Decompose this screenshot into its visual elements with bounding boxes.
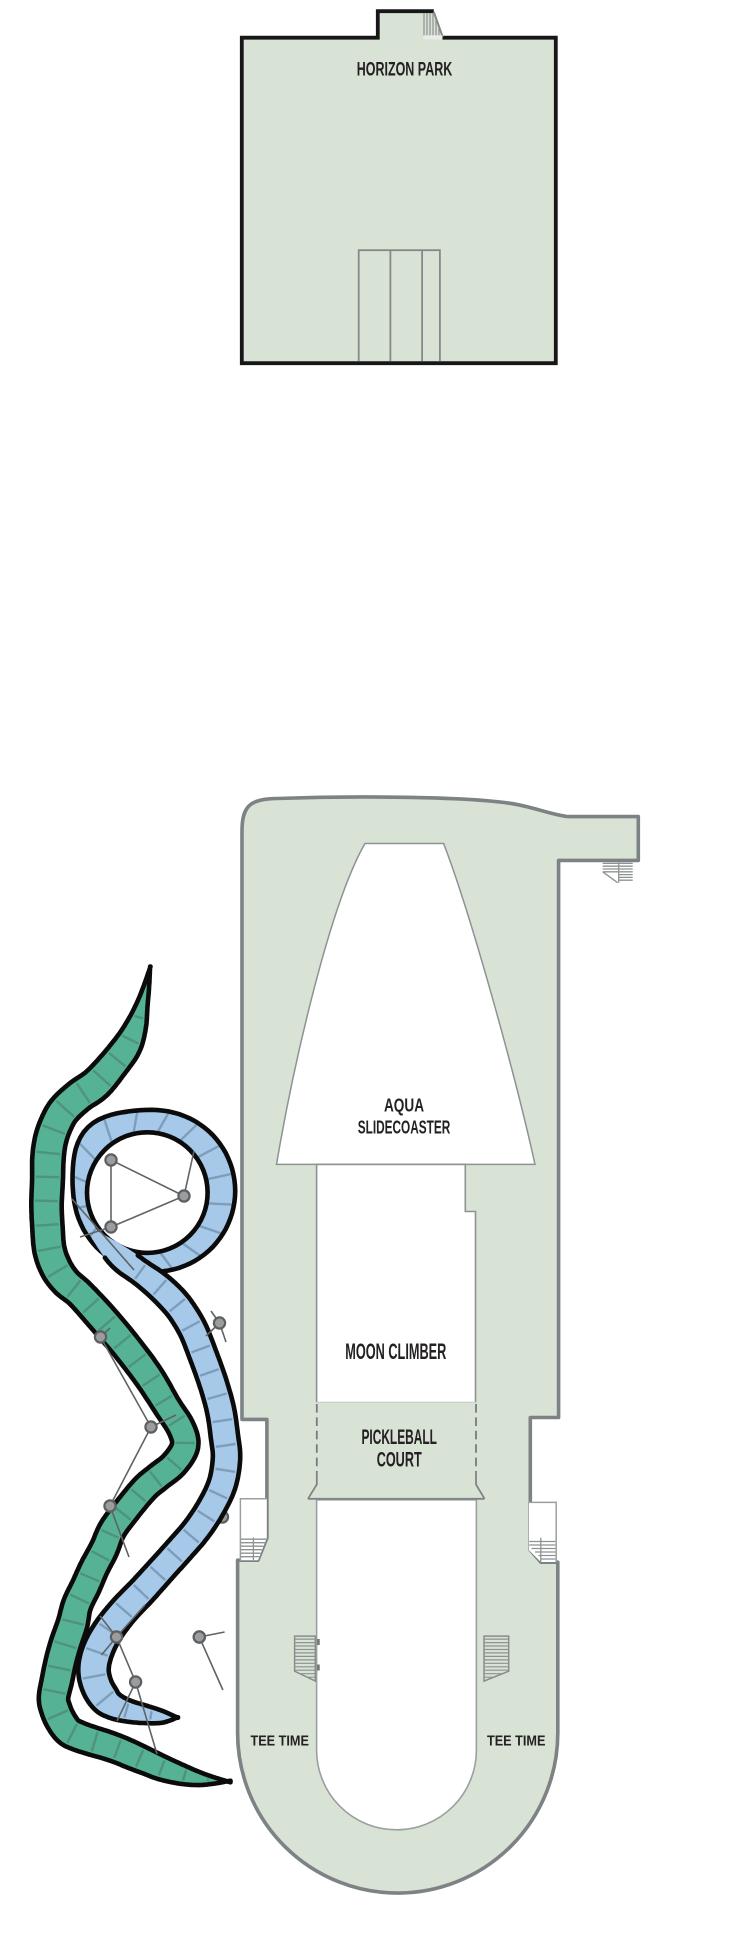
svg-text:TEE TIME: TEE TIME: [250, 1733, 309, 1750]
svg-text:AQUA: AQUA: [384, 1096, 424, 1116]
svg-text:TEE TIME: TEE TIME: [487, 1733, 546, 1750]
svg-text:PICKLEBALL: PICKLEBALL: [361, 1426, 437, 1449]
svg-text:MOON CLIMBER: MOON CLIMBER: [345, 1339, 446, 1364]
svg-text:COURT: COURT: [377, 1449, 422, 1472]
svg-text:SLIDECOASTER: SLIDECOASTER: [358, 1118, 451, 1138]
svg-text:HORIZON PARK: HORIZON PARK: [357, 59, 453, 80]
